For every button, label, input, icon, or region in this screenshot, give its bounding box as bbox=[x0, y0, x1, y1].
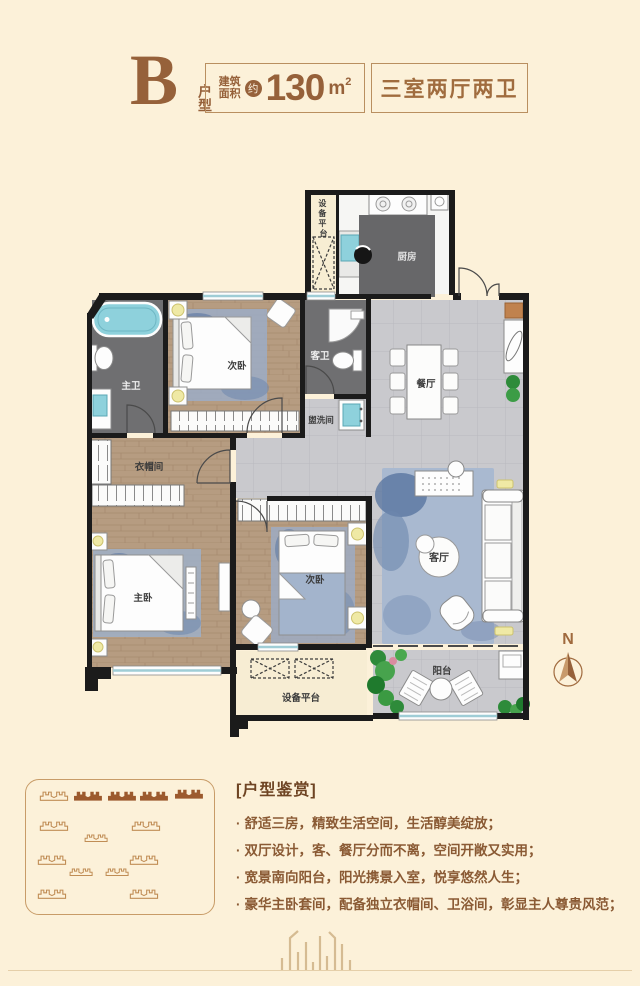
bullet-dot: · bbox=[236, 843, 241, 858]
area-unit: m2 bbox=[328, 76, 351, 100]
stool-icon bbox=[242, 600, 260, 618]
area-info-box: 建筑 面积 约 130 m2 bbox=[205, 63, 365, 113]
equip-bottom-floor bbox=[236, 651, 367, 715]
side-pad bbox=[495, 627, 513, 635]
review-item-text: 豪华主卧套间，配备独立衣帽间、卫浴间，彰显主人尊贵风范； bbox=[245, 897, 623, 912]
battlement-row bbox=[38, 790, 202, 898]
chair-icon bbox=[390, 397, 405, 414]
window bbox=[258, 643, 298, 651]
side-pad bbox=[497, 480, 513, 488]
room-label-kitchen: 厨房 bbox=[397, 251, 416, 263]
chair-icon bbox=[443, 373, 458, 390]
bullet-dot: · bbox=[236, 897, 241, 912]
room-label-washroom: 盥洗间 bbox=[308, 415, 334, 425]
area-prefix-line2: 面积 bbox=[219, 88, 241, 100]
plant-icon bbox=[506, 375, 520, 389]
area-prefix: 建筑 面积 bbox=[219, 76, 241, 100]
review-title-text: 户型鉴赏 bbox=[242, 782, 310, 799]
chair-icon bbox=[443, 349, 458, 366]
floorplan-page: { "header": { "letter": "B", "letter_cap… bbox=[0, 0, 640, 986]
dresser-icon bbox=[219, 563, 230, 611]
room-label-dining: 餐厅 bbox=[415, 378, 436, 390]
review-item: ·双厅设计，客、餐厅分而不离，空间开敞又实用； bbox=[236, 837, 628, 864]
rooms-summary: 三室两厅两卫 bbox=[381, 73, 519, 103]
review-item-text: 双厅设计，客、餐厅分而不离，空间开敞又实用； bbox=[245, 843, 542, 858]
unit-letter: B bbox=[130, 44, 178, 116]
entry-door-leaf bbox=[487, 284, 499, 296]
room-label-bedroom-second: 次卧 bbox=[305, 574, 325, 586]
battlement-pattern bbox=[26, 780, 213, 913]
balcony-table-icon bbox=[430, 678, 452, 700]
room-label-equip-bottom: 设备平台 bbox=[282, 692, 321, 704]
room-label-master-bath: 主卫 bbox=[121, 380, 141, 392]
review-item: ·宽景南向阳台，阳光携景入室，悦享悠然人生； bbox=[236, 864, 628, 891]
window bbox=[399, 712, 497, 720]
review-item: ·舒适三房，精致生活空间，生活醇美绽放； bbox=[236, 810, 628, 837]
bracket-close: ] bbox=[310, 782, 316, 799]
washroom-fixtures bbox=[339, 400, 364, 430]
bullet-dot: · bbox=[236, 816, 241, 831]
chair-icon bbox=[443, 397, 458, 414]
compass: N bbox=[548, 632, 588, 697]
room-label-cloakroom: 衣帽间 bbox=[135, 461, 164, 473]
room-label-master-bedroom: 主卧 bbox=[133, 592, 153, 604]
floor-plan: 设 备 平 台 厨房 主卫 次卧 客卫 盥洗间 餐厅 衣帽间 主卧 次卧 客厅 … bbox=[85, 183, 537, 739]
room-label-guest-bath: 客卫 bbox=[309, 350, 330, 362]
review-item: ·豪华主卧套间，配备独立衣帽间、卫浴间，彰显主人尊贵风范； bbox=[236, 891, 628, 918]
compass-icon bbox=[548, 648, 588, 692]
shoe-cabinet-icon bbox=[504, 320, 524, 373]
room-label-bedroom-top: 次卧 bbox=[227, 360, 247, 372]
compass-n-label: N bbox=[548, 632, 588, 648]
entry-door bbox=[459, 268, 487, 296]
footer-divider bbox=[8, 970, 632, 971]
area-unit-m: m bbox=[328, 78, 345, 99]
review-item-text: 宽景南向阳台，阳光携景入室，悦享悠然人生； bbox=[245, 870, 529, 885]
window bbox=[203, 292, 263, 300]
skyline-logo-icon bbox=[268, 926, 378, 972]
kitchen-corner-sink-icon bbox=[431, 193, 448, 210]
wardrobe-icon bbox=[91, 440, 111, 484]
wardrobe-icon bbox=[92, 485, 184, 506]
review-title: [户型鉴赏] bbox=[236, 776, 628, 800]
floor-lamp-icon bbox=[448, 461, 464, 477]
room-label-balcony: 阳台 bbox=[432, 665, 452, 677]
toilet-icon bbox=[353, 350, 362, 371]
window bbox=[307, 292, 335, 300]
approx-badge: 约 bbox=[245, 80, 262, 97]
area-unit-exp: 2 bbox=[345, 76, 351, 88]
room-label-living: 客厅 bbox=[428, 551, 449, 564]
review-section: [户型鉴赏] ·舒适三房，精致生活空间，生活醇美绽放； ·双厅设计，客、餐厅分而… bbox=[236, 776, 628, 918]
window bbox=[113, 666, 221, 675]
chair-icon bbox=[390, 349, 405, 366]
review-item-text: 舒适三房，精致生活空间，生活醇美绽放； bbox=[245, 816, 502, 831]
chair-icon bbox=[390, 373, 405, 390]
decor-pattern-box bbox=[25, 779, 215, 915]
rooms-summary-box: 三室两厅两卫 bbox=[371, 63, 528, 113]
plant-icon bbox=[506, 388, 520, 402]
review-list: ·舒适三房，精致生活空间，生活醇美绽放； ·双厅设计，客、餐厅分而不离，空间开敞… bbox=[236, 810, 628, 918]
area-number: 130 bbox=[266, 67, 325, 109]
area-prefix-line1: 建筑 bbox=[219, 76, 241, 88]
wardrobe-icon bbox=[171, 411, 299, 431]
entry-cabinet-top bbox=[505, 303, 523, 318]
bullet-dot: · bbox=[236, 870, 241, 885]
